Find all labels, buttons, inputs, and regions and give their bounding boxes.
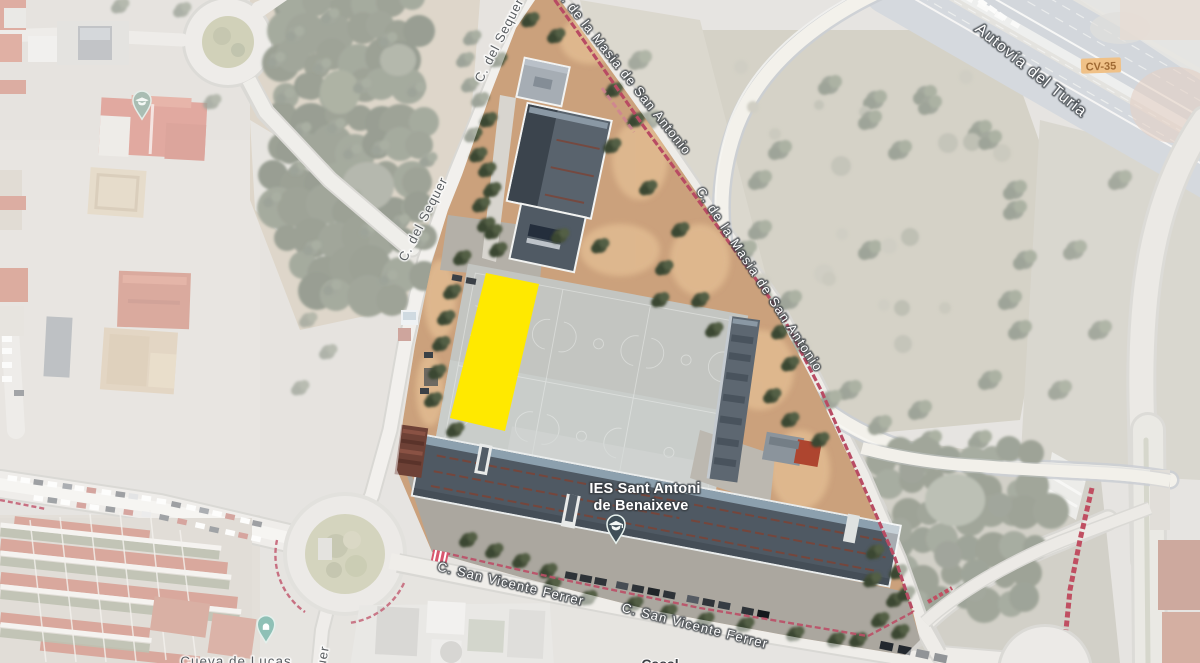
- svg-text:Casal: Casal: [641, 656, 678, 663]
- svg-text:Cueva de Lucas: Cueva de Lucas: [180, 654, 292, 663]
- svg-text:de Benaixeve: de Benaixeve: [593, 498, 688, 514]
- svg-text:CV-35: CV-35: [1086, 60, 1117, 73]
- svg-text:IES Sant Antoni: IES Sant Antoni: [589, 481, 700, 497]
